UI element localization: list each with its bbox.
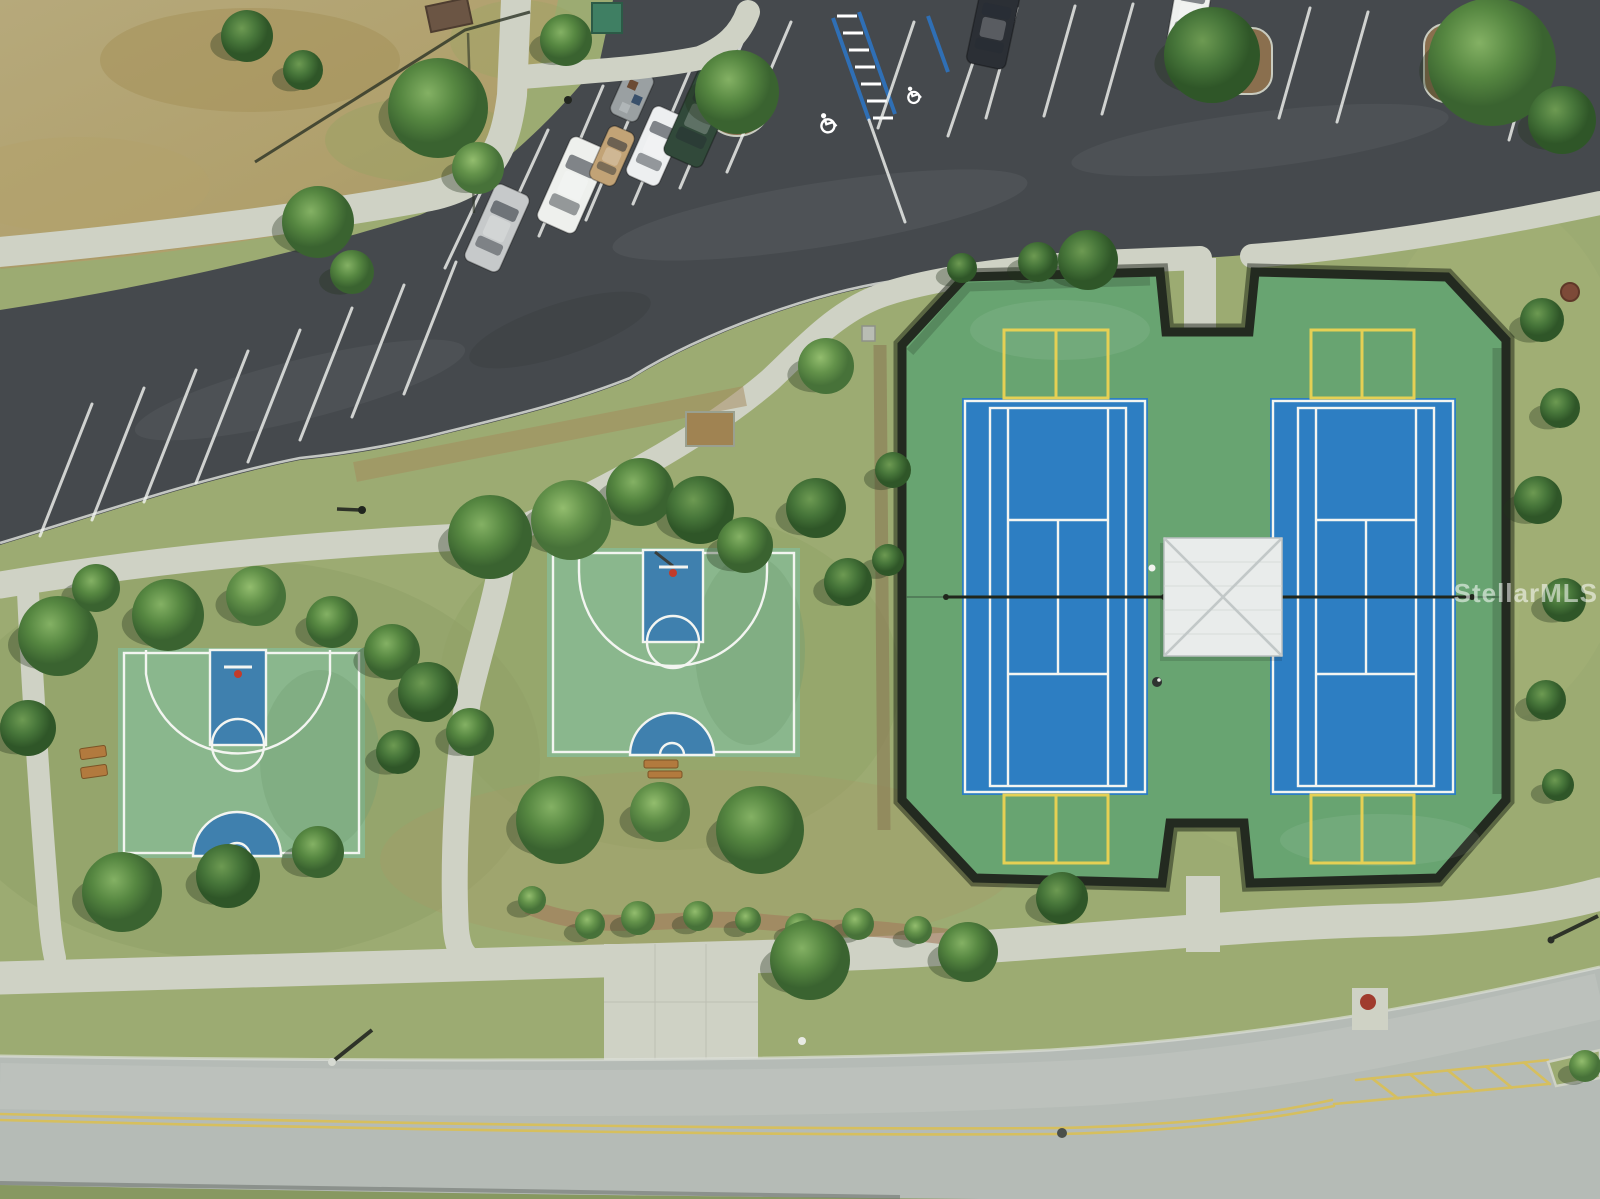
tree-canopy xyxy=(1514,476,1562,524)
tree-canopy xyxy=(452,142,504,194)
figure-dot xyxy=(1149,565,1156,572)
tree-canopy xyxy=(875,452,911,488)
tree-canopy xyxy=(606,458,674,526)
court-mottle xyxy=(695,555,805,745)
tree-canopy xyxy=(132,579,204,651)
manhole-cover xyxy=(1057,1128,1067,1138)
park-bench xyxy=(644,760,678,768)
tennis-court-west xyxy=(943,398,1167,795)
tree-canopy xyxy=(630,782,690,842)
bollard xyxy=(564,96,572,104)
tennis-complex xyxy=(902,272,1506,883)
dirt-strip xyxy=(880,345,884,830)
tree-canopy xyxy=(1526,680,1566,720)
tree-canopy xyxy=(292,826,344,878)
tree-canopy xyxy=(283,50,323,90)
streetlight-base xyxy=(328,1058,336,1066)
tree-canopy xyxy=(1540,388,1580,428)
tree-canopy xyxy=(695,50,779,134)
tree-canopy xyxy=(872,544,904,576)
utility-box-small xyxy=(862,326,875,341)
streetlight-base xyxy=(1548,937,1555,944)
manhole-cover xyxy=(1561,283,1579,301)
tree-canopy xyxy=(226,566,286,626)
tree-canopy xyxy=(1018,242,1058,282)
tree-canopy xyxy=(446,708,494,756)
tree-canopy xyxy=(575,909,605,939)
tree-canopy xyxy=(72,564,120,612)
gate-walk-north xyxy=(1184,258,1216,332)
tree-canopy xyxy=(770,920,850,1000)
tree-canopy xyxy=(717,517,773,573)
tree-canopy xyxy=(683,901,713,931)
court-mottle xyxy=(260,670,380,850)
aerial-scene: StellarMLS xyxy=(0,0,1600,1199)
watermark: StellarMLS xyxy=(1454,578,1598,608)
tree-canopy xyxy=(842,908,874,940)
tennis-court-east xyxy=(1251,398,1475,795)
equipment-dot xyxy=(1152,677,1162,687)
painted-key xyxy=(210,650,266,745)
tree-canopy xyxy=(621,901,655,935)
tree-canopy xyxy=(540,14,592,66)
tree-canopy xyxy=(518,886,546,914)
tree-canopy xyxy=(1058,230,1118,290)
tree-canopy xyxy=(786,478,846,538)
tree-canopy xyxy=(448,495,532,579)
tree-canopy xyxy=(82,852,162,932)
fire-hydrant xyxy=(1360,994,1376,1010)
tree-canopy xyxy=(398,662,458,722)
tree-canopy xyxy=(1164,7,1260,103)
tree-canopy xyxy=(735,907,761,933)
tree-canopy xyxy=(1542,769,1574,801)
tree-canopy xyxy=(221,10,273,62)
pavilion xyxy=(1160,538,1282,661)
bollard xyxy=(358,506,366,514)
tree-canopy xyxy=(531,480,611,560)
basketball-hoop xyxy=(669,569,677,577)
gate-walk-south xyxy=(1186,876,1220,952)
tree-canopy xyxy=(1528,86,1596,154)
tree-canopy xyxy=(824,558,872,606)
tree-canopy xyxy=(947,253,977,283)
tree-canopy xyxy=(196,844,260,908)
landscaped-bed xyxy=(686,412,734,446)
basketball-court-west xyxy=(118,648,380,858)
park-bench xyxy=(648,771,682,778)
tree-canopy xyxy=(904,916,932,944)
tree-canopy xyxy=(1036,872,1088,924)
tree-canopy xyxy=(1569,1050,1600,1082)
aerial-photo: StellarMLS xyxy=(0,0,1600,1199)
tree-canopy xyxy=(1520,298,1564,342)
tree-canopy xyxy=(282,186,354,258)
basketball-court-center xyxy=(547,548,805,757)
tree-canopy xyxy=(376,730,420,774)
tree-canopy xyxy=(798,338,854,394)
net-post xyxy=(943,594,949,600)
utility-marker xyxy=(798,1037,806,1045)
tree-canopy xyxy=(716,786,804,874)
tree-canopy xyxy=(938,922,998,982)
tree-canopy xyxy=(306,596,358,648)
tree-canopy xyxy=(0,700,56,756)
tree-canopy xyxy=(330,250,374,294)
bollard-shadow xyxy=(337,509,360,510)
basketball-hoop xyxy=(234,670,242,678)
equipment-dot-highlight xyxy=(1157,678,1161,682)
utility-box xyxy=(592,3,622,33)
tree-canopy xyxy=(516,776,604,864)
